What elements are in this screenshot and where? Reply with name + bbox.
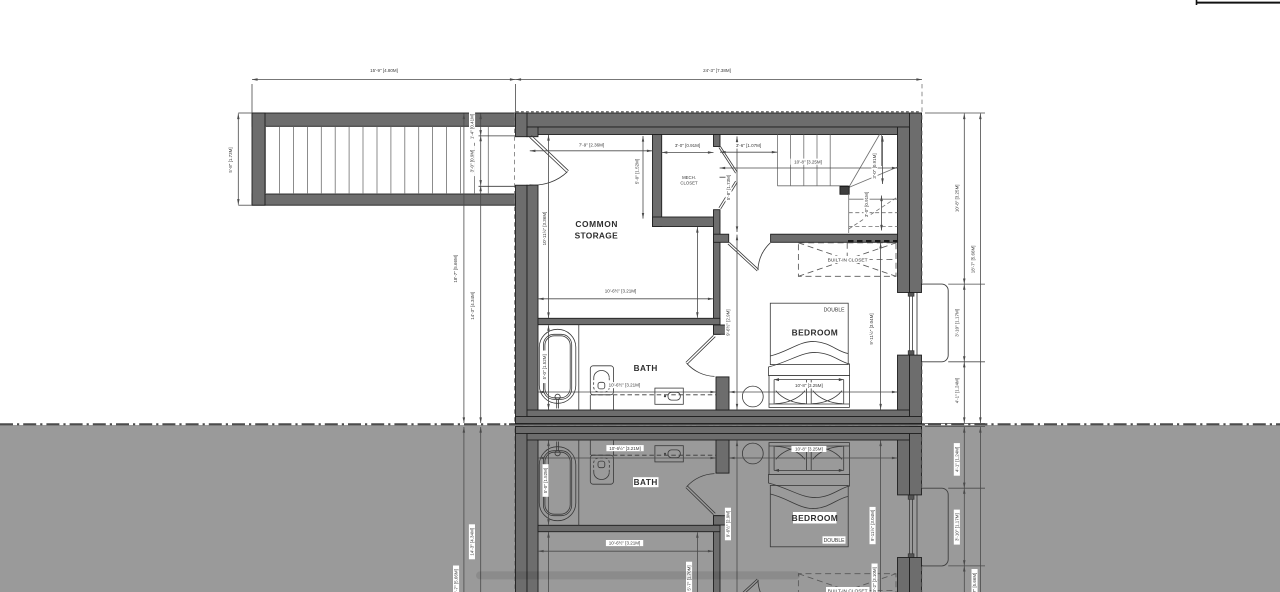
svg-text:CLOSET: CLOSET bbox=[680, 180, 698, 185]
svg-text:9'-11½" [3.04M]: 9'-11½" [3.04M] bbox=[869, 510, 875, 541]
svg-text:3'-0" [0.9M]: 3'-0" [0.9M] bbox=[469, 150, 474, 173]
svg-text:15'-9" [4.80M]: 15'-9" [4.80M] bbox=[370, 68, 398, 73]
svg-text:5'-8" [1.73M]: 5'-8" [1.73M] bbox=[228, 147, 233, 172]
svg-text:BEDROOM: BEDROOM bbox=[792, 513, 839, 523]
svg-text:18'-7" [5.66M]: 18'-7" [5.66M] bbox=[972, 573, 977, 592]
svg-text:DOUBLE: DOUBLE bbox=[824, 538, 846, 544]
svg-text:1'-4" [0.41M]: 1'-4" [0.41M] bbox=[470, 114, 475, 139]
svg-text:4'-1" [1.24M]: 4'-1" [1.24M] bbox=[954, 447, 959, 472]
svg-text:5'-8" [1.73M]: 5'-8" [1.73M] bbox=[726, 175, 731, 200]
svg-text:3'-10" [1.17M]: 3'-10" [1.17M] bbox=[954, 513, 959, 541]
svg-text:14'-3" [4.34M]: 14'-3" [4.34M] bbox=[470, 528, 475, 556]
svg-text:5'-0" [1.52M]: 5'-0" [1.52M] bbox=[542, 354, 547, 379]
svg-text:10'-8" [3.25M]: 10'-8" [3.25M] bbox=[954, 184, 959, 212]
svg-text:BATH: BATH bbox=[634, 478, 658, 487]
svg-text:3'-0" [0.91M]: 3'-0" [0.91M] bbox=[872, 153, 877, 178]
svg-text:9'-6½" [2.9M]: 9'-6½" [2.9M] bbox=[725, 309, 731, 335]
svg-text:10'-8" [3.25M]: 10'-8" [3.25M] bbox=[795, 383, 823, 388]
svg-text:10'-6½" [3.21M]: 10'-6½" [3.21M] bbox=[609, 445, 640, 451]
svg-text:10'-8" [3.25M]: 10'-8" [3.25M] bbox=[795, 447, 823, 452]
svg-text:10'-6½" [3.21M]: 10'-6½" [3.21M] bbox=[609, 382, 640, 388]
svg-text:5'-0" [1.52M]: 5'-0" [1.52M] bbox=[543, 468, 548, 493]
svg-text:STORAGE: STORAGE bbox=[575, 231, 618, 241]
svg-text:14'-3" [4.34M]: 14'-3" [4.34M] bbox=[470, 292, 475, 320]
svg-text:BUILT-IN CLOSET: BUILT-IN CLOSET bbox=[828, 258, 868, 264]
svg-text:10'-11½" [3.36M]: 10'-11½" [3.36M] bbox=[541, 212, 547, 246]
svg-text:5'-0" [1.52M]: 5'-0" [1.52M] bbox=[635, 159, 640, 184]
svg-text:BEDROOM: BEDROOM bbox=[792, 328, 839, 338]
svg-text:3'-6" [1.07M]: 3'-6" [1.07M] bbox=[736, 143, 761, 148]
svg-text:18'-7" [5.66M]: 18'-7" [5.66M] bbox=[454, 569, 459, 592]
svg-text:24'-3" [7.38M]: 24'-3" [7.38M] bbox=[703, 68, 731, 73]
svg-text:10'-6½" [3.21M]: 10'-6½" [3.21M] bbox=[609, 540, 640, 546]
svg-text:9'-11½" [3.04M]: 9'-11½" [3.04M] bbox=[868, 313, 874, 344]
svg-text:10'-6½" [3.21M]: 10'-6½" [3.21M] bbox=[605, 288, 636, 294]
svg-text:10'-8" [3.25M]: 10'-8" [3.25M] bbox=[794, 159, 822, 164]
svg-text:4'-1" [1.24M]: 4'-1" [1.24M] bbox=[954, 378, 959, 403]
svg-text:3'-10" [1.17M]: 3'-10" [1.17M] bbox=[954, 309, 959, 337]
svg-text:7'-9" [2.36M]: 7'-9" [2.36M] bbox=[579, 143, 604, 148]
svg-text:18'-7" [5.66M]: 18'-7" [5.66M] bbox=[970, 246, 975, 274]
svg-text:9'-6½" [2.9M]: 9'-6½" [2.9M] bbox=[725, 511, 731, 537]
svg-text:3'-0" [0.91M]: 3'-0" [0.91M] bbox=[675, 143, 700, 148]
svg-text:DOUBLE: DOUBLE bbox=[824, 307, 846, 313]
svg-text:3'-0" [0.91M]: 3'-0" [0.91M] bbox=[864, 192, 869, 217]
svg-text:COMMON: COMMON bbox=[575, 219, 618, 229]
svg-text:BUILT-IN CLOSET: BUILT-IN CLOSET bbox=[828, 589, 868, 592]
svg-text:BATH: BATH bbox=[634, 364, 658, 373]
svg-text:18'-7" [5.66M]: 18'-7" [5.66M] bbox=[453, 255, 458, 283]
svg-text:10'-2" [3.10M]: 10'-2" [3.10M] bbox=[872, 567, 877, 592]
